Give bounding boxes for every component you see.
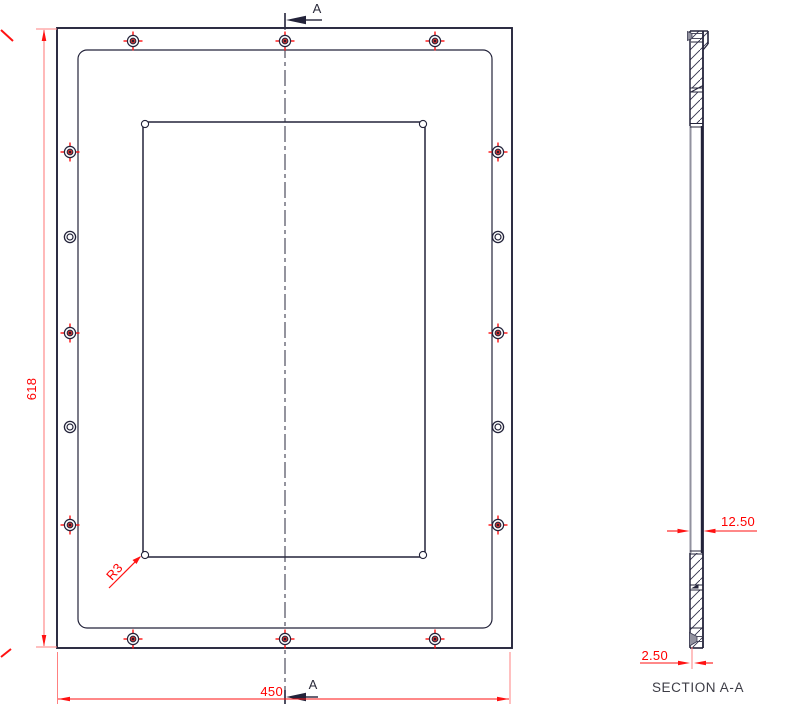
- mounting-hole-crosshair: [489, 324, 508, 343]
- mounting-holes-layer: [61, 32, 508, 649]
- section-view: 12.50 2.50 SECTION A-A: [640, 31, 757, 695]
- dim-wall-text: 2.50: [641, 648, 668, 663]
- mounting-hole-crosshair: [61, 143, 80, 162]
- mounting-hole-plain: [64, 231, 75, 242]
- front-view: A A 618 450: [1, 1, 512, 706]
- mounting-hole-crosshair: [61, 324, 80, 343]
- dim-width-text: 450: [260, 684, 283, 699]
- corner-radius-callout: R3: [103, 556, 141, 588]
- mounting-hole-crosshair: [489, 143, 508, 162]
- section-label-top: A: [313, 1, 322, 16]
- mounting-hole-crosshair: [276, 32, 295, 51]
- dimension-width: 450: [58, 652, 511, 704]
- mounting-hole-crosshair: [61, 516, 80, 535]
- mounting-hole-crosshair: [426, 630, 445, 649]
- mounting-hole-crosshair: [124, 630, 143, 649]
- dim-height-text: 618: [24, 378, 39, 401]
- mounting-hole-crosshair: [489, 516, 508, 535]
- section-arrow-top: A: [285, 1, 322, 27]
- mounting-hole-crosshair: [276, 630, 295, 649]
- sheet-corner-marks: [1, 30, 13, 657]
- pocket-corner-relief: [141, 120, 426, 558]
- dim-radius-text: R3: [103, 560, 126, 583]
- section-title: SECTION A-A: [652, 680, 744, 695]
- section-label-bottom: A: [309, 677, 318, 692]
- mounting-hole-crosshair: [124, 32, 143, 51]
- mounting-hole-plain: [492, 231, 503, 242]
- dimension-height: 618: [24, 29, 57, 647]
- pocket-outline: [143, 122, 425, 557]
- mounting-hole-plain: [492, 421, 503, 432]
- dimension-wall: 2.50: [640, 647, 713, 669]
- dimension-thickness: 12.50: [667, 514, 757, 533]
- section-arrow-bottom: A: [285, 677, 318, 704]
- dim-thickness-text: 12.50: [721, 514, 755, 529]
- mounting-hole-plain: [64, 421, 75, 432]
- cad-drawing-sheet: A A 618 450: [0, 0, 787, 714]
- mounting-hole-crosshair: [426, 32, 445, 51]
